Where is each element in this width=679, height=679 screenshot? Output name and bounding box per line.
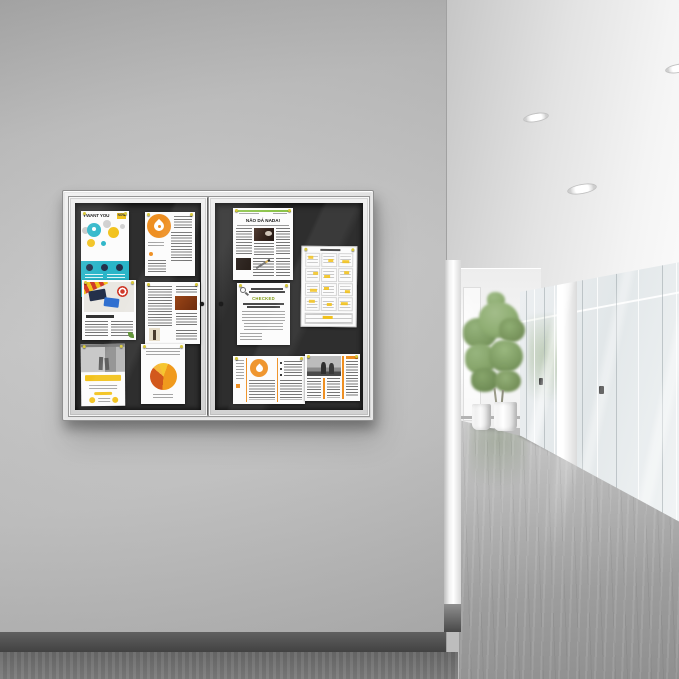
office-hallway-photo: I WANT YOU NOW [0,0,679,679]
board-door-right: NÃO DÁ NADA! [208,196,370,417]
recessed-light [566,181,597,196]
board-door-left: I WANT YOU NOW [68,196,208,417]
board-felt-left: I WANT YOU NOW [75,203,201,410]
board-felt-right: NÃO DÁ NADA! [215,203,363,410]
hallway [446,0,679,679]
bulletin-board: I WANT YOU NOW [62,190,374,421]
corner-pillar [444,260,461,632]
plant-pot-large [494,402,517,431]
door-lock-left [200,302,204,306]
corner-pillar-base [444,604,461,632]
baseboard [0,632,446,652]
plant-pot-small [472,404,491,430]
near-floor [0,652,458,679]
recessed-light [664,62,679,75]
plant-foliage [499,318,525,342]
door-glass-glare [75,203,201,410]
door-glass-glare [215,203,363,410]
plant-foliage [495,370,521,392]
plant-foliage [489,340,523,372]
door-seam [207,198,208,415]
door-lock-right [219,302,223,306]
recessed-light [522,111,549,124]
hallway-ceiling [447,0,679,293]
